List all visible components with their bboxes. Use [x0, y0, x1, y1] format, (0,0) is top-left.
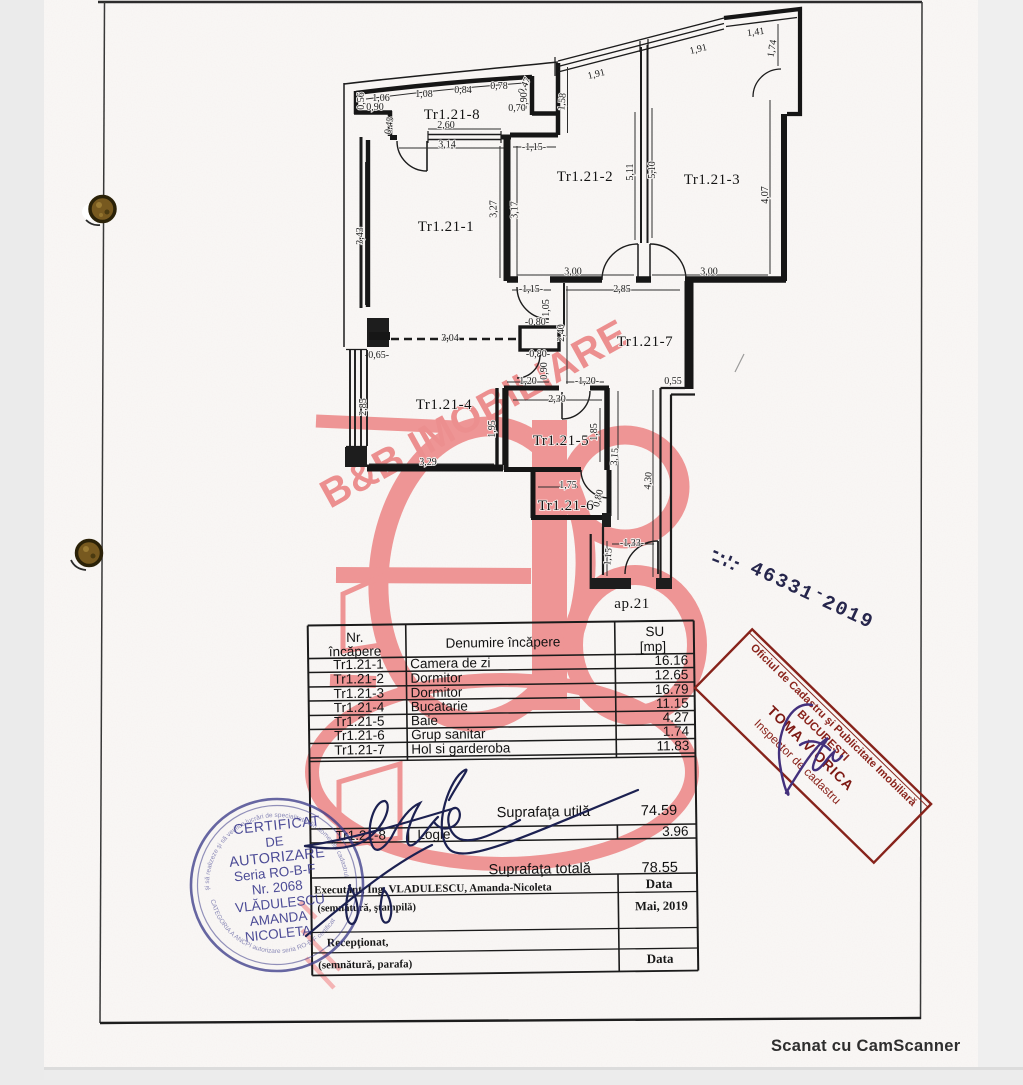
svg-text:Bucatarie: Bucatarie [411, 698, 468, 714]
svg-text:Tr1.21-1: Tr1.21-1 [333, 657, 384, 673]
svg-text:Tr1.21-2: Tr1.21-2 [333, 671, 384, 687]
svg-text:1,85: 1,85 [589, 423, 600, 441]
svg-text:3,15: 3,15 [609, 448, 621, 466]
svg-text:0,55: 0,55 [664, 376, 682, 387]
svg-text:3,04: 3,04 [441, 333, 459, 344]
svg-text:1,20: 1,20 [519, 376, 537, 387]
svg-text:Tr1.21-4: Tr1.21-4 [416, 397, 472, 413]
svg-text:1,08: 1,08 [415, 89, 433, 100]
svg-text:3,29: 3,29 [419, 457, 437, 468]
svg-text:Dormitor: Dormitor [410, 670, 462, 686]
svg-text:12.65: 12.65 [654, 667, 688, 682]
svg-text:Mai, 2019: Mai, 2019 [635, 899, 688, 914]
svg-text:-1,33-: -1,33- [620, 538, 644, 549]
svg-text:SU: SU [645, 624, 664, 639]
svg-text:Tr1.21-5: Tr1.21-5 [533, 433, 589, 449]
svg-text:1,95: 1,95 [487, 420, 498, 438]
svg-text:Tr1.21-6: Tr1.21-6 [334, 728, 385, 744]
svg-text:Suprafaţa utilă: Suprafaţa utilă [497, 804, 592, 821]
svg-text:74.59: 74.59 [641, 803, 678, 819]
svg-text:2,30: 2,30 [548, 394, 566, 405]
svg-text:-0,65-: -0,65- [365, 350, 389, 361]
svg-text:Baie: Baie [411, 713, 438, 728]
svg-text:Grup sanitar: Grup sanitar [411, 726, 486, 742]
svg-text:3,43: 3,43 [355, 227, 366, 245]
svg-text:(semnătură, ştampilă): (semnătură, ştampilă) [317, 902, 416, 914]
svg-text:11.83: 11.83 [656, 738, 689, 753]
svg-text:Scanat cu CamScanner: Scanat cu CamScanner [771, 1037, 961, 1055]
svg-text:(semnătură, parafa): (semnătură, parafa) [318, 958, 413, 971]
svg-text:3,00: 3,00 [564, 267, 582, 278]
svg-text:3,14: 3,14 [438, 140, 456, 151]
svg-text:[mp]: [mp] [640, 639, 666, 654]
svg-text:Hol si garderoba: Hol si garderoba [411, 740, 511, 756]
svg-text:Suprafaţa totală: Suprafaţa totală [488, 861, 592, 878]
svg-text:Tr1.21-1: Tr1.21-1 [418, 219, 474, 235]
svg-text:0,90: 0,90 [539, 362, 550, 380]
svg-text:2,60: 2,60 [437, 120, 455, 131]
svg-text:3.96: 3.96 [662, 824, 688, 839]
svg-text:4,07: 4,07 [760, 186, 771, 204]
svg-text:Denumire încăpere: Denumire încăpere [445, 634, 560, 651]
svg-text:DE: DE [265, 833, 285, 850]
svg-text:Tr1.21-3: Tr1.21-3 [684, 172, 740, 188]
svg-text:Data: Data [646, 876, 673, 891]
svg-text:0,70: 0,70 [508, 103, 526, 114]
svg-text:Tr1.21-7: Tr1.21-7 [617, 334, 673, 350]
svg-text:2,85: 2,85 [358, 398, 369, 416]
svg-text:3,00: 3,00 [700, 267, 718, 278]
svg-text:78.55: 78.55 [642, 860, 679, 876]
svg-text:ap.21: ap.21 [614, 596, 649, 612]
svg-text:0,84: 0,84 [454, 85, 472, 96]
svg-text:0,90: 0,90 [366, 102, 384, 113]
svg-text:-1,15-: -1,15- [522, 142, 546, 153]
svg-text:1.74: 1.74 [663, 724, 690, 739]
svg-text:2,85: 2,85 [613, 284, 631, 295]
svg-text:Camera de zi: Camera de zi [410, 655, 490, 671]
svg-text:Tr1.21-2: Tr1.21-2 [557, 169, 613, 185]
svg-text:5,11: 5,11 [625, 163, 636, 180]
svg-text:Tr1.21-7: Tr1.21-7 [334, 742, 385, 758]
svg-text:1,75: 1,75 [559, 480, 577, 491]
svg-text:4.27: 4.27 [663, 710, 689, 725]
svg-text:3,27: 3,27 [489, 200, 500, 218]
svg-text:4,30: 4,30 [642, 472, 654, 490]
svg-text:-1,20-: -1,20- [575, 376, 599, 387]
svg-text:-1,15-: -1,15- [519, 284, 543, 295]
svg-text:1,05: 1,05 [541, 299, 552, 317]
svg-text:-0,80-: -0,80- [526, 349, 550, 360]
svg-text:1,15: 1,15 [602, 548, 614, 566]
svg-text:1,58: 1,58 [556, 93, 568, 111]
svg-text:Nr.: Nr. [346, 630, 363, 645]
svg-text:5,10: 5,10 [647, 161, 658, 179]
svg-text:Tr1.21-6: Tr1.21-6 [538, 498, 594, 514]
svg-text:3,17: 3,17 [510, 201, 521, 219]
svg-text:0,78: 0,78 [490, 81, 508, 92]
svg-text:16.16: 16.16 [654, 653, 688, 668]
svg-text:Data: Data [647, 951, 674, 966]
svg-text:2,40: 2,40 [556, 324, 567, 342]
